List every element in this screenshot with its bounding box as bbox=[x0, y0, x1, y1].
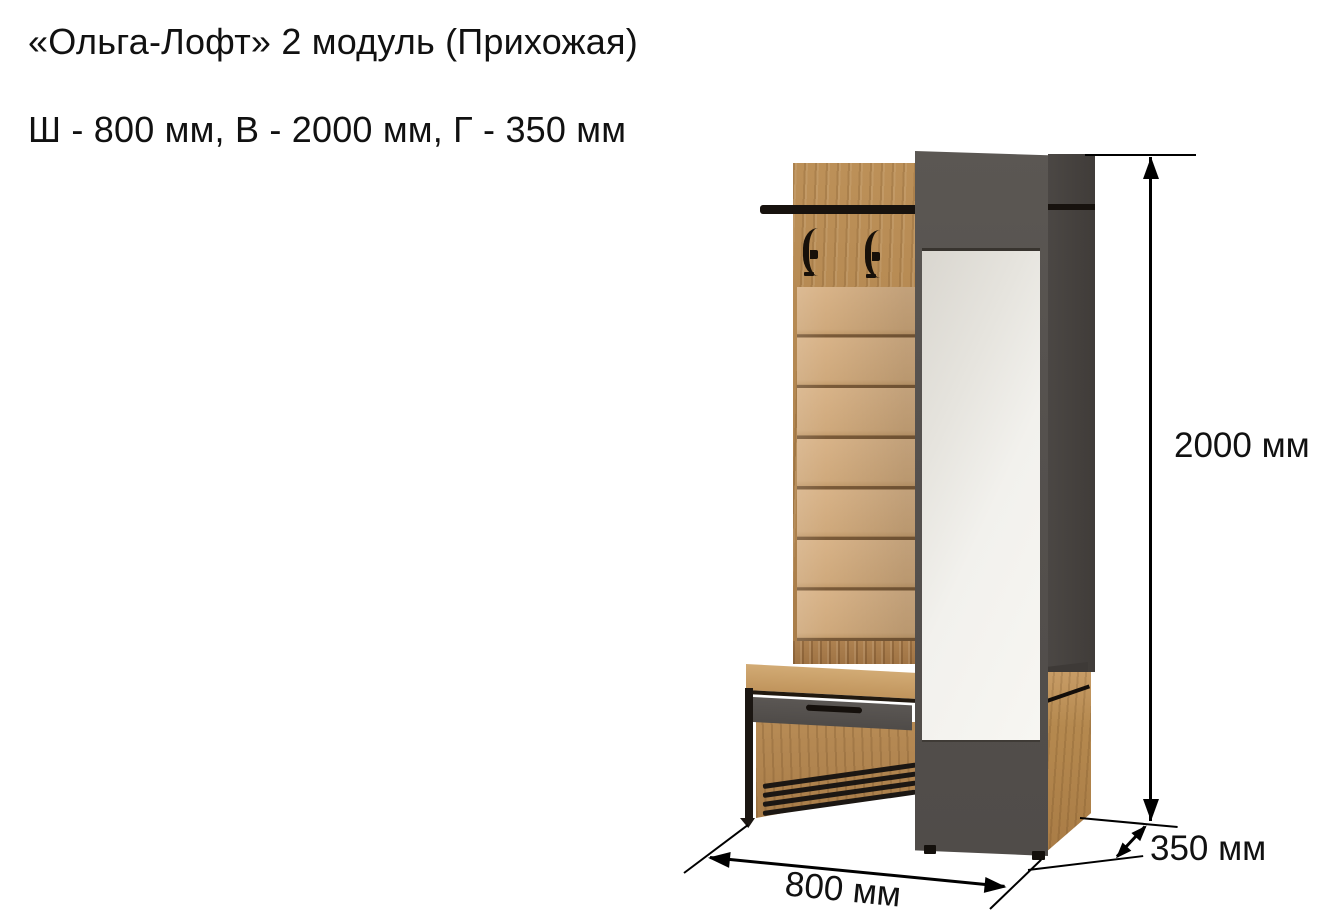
depth-dimension-arrow bbox=[1116, 825, 1146, 857]
hook-knob bbox=[810, 250, 818, 259]
arrow-up-icon bbox=[1143, 157, 1159, 179]
hook-foot bbox=[804, 272, 814, 276]
side-panel-right bbox=[1048, 154, 1095, 672]
panel-foot bbox=[1032, 851, 1045, 860]
coat-hook-left bbox=[802, 228, 818, 276]
upholstered-slat-panel bbox=[797, 287, 915, 641]
width-dimension-label: 800 мм bbox=[782, 866, 905, 913]
page-title: «Ольга-Лофт» 2 модуль (Прихожая) bbox=[28, 22, 638, 62]
panel-foot bbox=[924, 845, 936, 854]
extension-line-top bbox=[1085, 154, 1196, 156]
height-dimension-line bbox=[1149, 157, 1152, 821]
mirror bbox=[922, 248, 1040, 742]
depth-dimension-label: 350 мм bbox=[1150, 831, 1266, 866]
extension-line-depth-upper bbox=[1080, 817, 1178, 828]
hook-foot bbox=[866, 274, 876, 278]
dimensions-subtitle: Ш - 800 мм, В - 2000 мм, Г - 350 мм bbox=[28, 110, 626, 150]
extension-line-depth-lower bbox=[1028, 855, 1143, 871]
hook-knob bbox=[872, 252, 880, 261]
top-shelf bbox=[760, 205, 917, 214]
product-dimension-diagram: «Ольга-Лофт» 2 модуль (Прихожая) Ш - 800… bbox=[0, 0, 1340, 924]
top-shelf-side-edge bbox=[1048, 204, 1095, 210]
height-dimension-label: 2000 мм bbox=[1174, 428, 1310, 463]
coat-hook-right bbox=[864, 230, 880, 278]
extension-line-width-left bbox=[683, 824, 748, 874]
arrow-down-icon bbox=[1143, 799, 1159, 821]
wood-bottom-strip bbox=[793, 641, 917, 664]
bench-frame-left bbox=[745, 688, 753, 820]
